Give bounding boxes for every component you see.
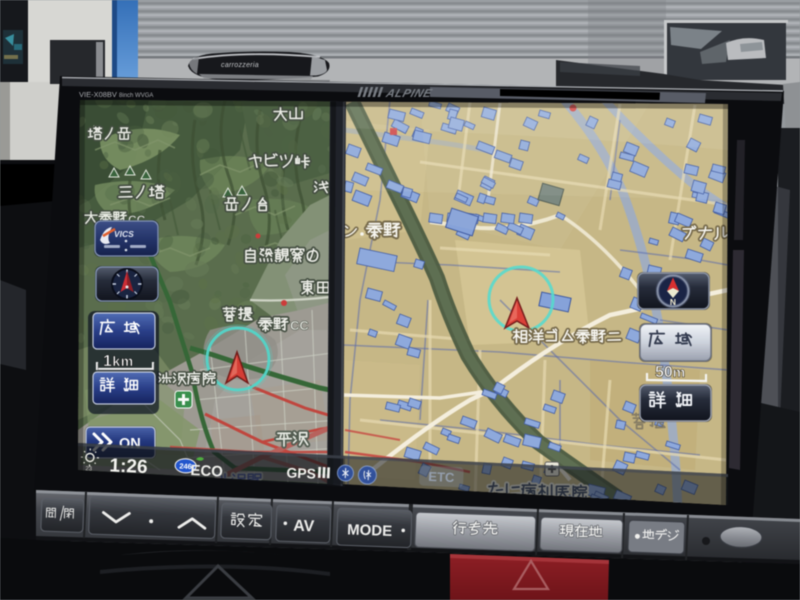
svg-text:ALPINE: ALPINE xyxy=(384,87,435,100)
svg-text:VICS: VICS xyxy=(114,229,134,239)
svg-text:ECO: ECO xyxy=(190,462,224,480)
svg-text:GPS: GPS xyxy=(286,464,316,481)
svg-text:ETC: ETC xyxy=(428,469,455,485)
svg-text:23: 23 xyxy=(85,466,93,472)
svg-text:50m: 50m xyxy=(655,364,685,381)
svg-text:1km: 1km xyxy=(103,353,134,370)
svg-text:AV: AV xyxy=(293,518,315,536)
svg-text:MODE: MODE xyxy=(347,521,393,540)
svg-text:carrozzeria: carrozzeria xyxy=(221,62,259,69)
svg-text:1:26: 1:26 xyxy=(109,455,148,478)
svg-text:N: N xyxy=(670,297,676,307)
